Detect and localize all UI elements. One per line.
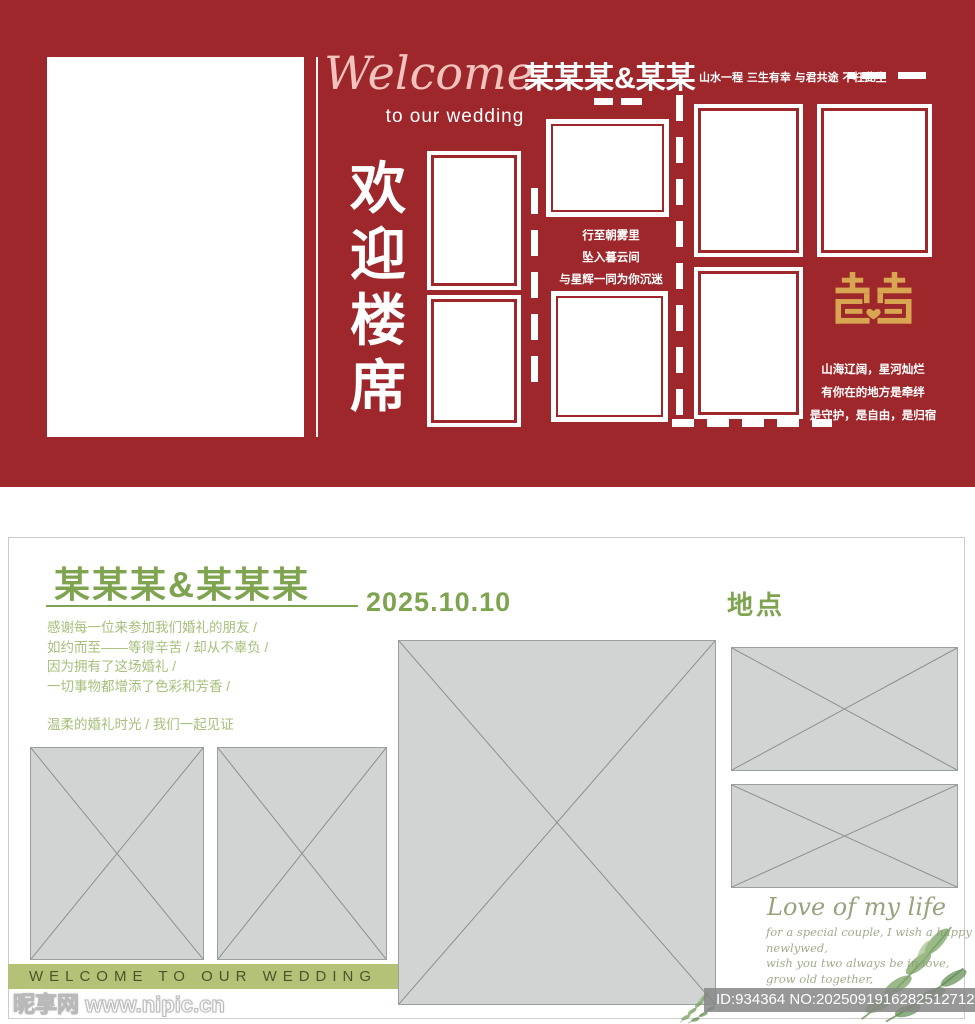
welcome-subtitle: to our wedding (365, 106, 545, 128)
welcome-script-title: Welcome (322, 46, 536, 100)
paragraph-line: 因为拥有了这场婚礼 / (47, 657, 268, 677)
location-label: 地点 (727, 585, 785, 622)
vertical-divider-line (316, 57, 318, 437)
photo-frame (694, 267, 803, 419)
blessing-block: 山海辽阔，星河灿烂 有你在的地方是牵绊 是守护，是自由，是归宿 (790, 358, 956, 427)
photo-placeholder (731, 647, 958, 771)
welcome-banner-text: WELCOME TO OUR WEDDING (8, 964, 398, 989)
photo-placeholder (731, 784, 958, 888)
site-watermark: 昵享网 www.nipic.cn (13, 987, 225, 1019)
paragraph-line: 一切事物都增添了色彩和芳香 / (47, 677, 268, 697)
vertical-title-char: 席 (347, 354, 409, 420)
deco-dash (898, 72, 926, 79)
photo-placeholder (30, 747, 204, 960)
blessing-line: 有你在的地方是牵绊 (790, 381, 956, 404)
motto-text: 山水一程 三生有幸 与君共途 不枉此生 (699, 69, 887, 85)
vertical-welcome-title: 欢 迎 楼 席 (347, 156, 409, 420)
blessing-line: 山海辽阔，星河灿烂 (790, 358, 956, 381)
deco-square (848, 72, 855, 79)
photo-frame (546, 119, 669, 217)
vertical-title-char: 楼 (347, 288, 409, 354)
photo-placeholder (217, 747, 387, 960)
stock-id-bar: ID:934364 NO:20250919162825127125 (704, 988, 975, 1012)
main-photo-placeholder (47, 57, 304, 437)
poem-line: 行至朝雾里 (530, 224, 692, 246)
wedding-date: 2025.10.10 (366, 587, 511, 618)
title-underline (46, 605, 358, 607)
paragraph-line: 感谢每一位来参加我们婚礼的朋友 / (47, 618, 268, 638)
wedding-poster-page: Welcome to our wedding 某某某&某某 山水一程 三生有幸 … (0, 0, 975, 1024)
couple-names-top: 某某某&某某 (524, 53, 696, 97)
witness-line: 温柔的婚礼时光 / 我们一起见证 (47, 713, 234, 733)
vertical-title-char: 迎 (347, 222, 409, 288)
poem-line: 坠入暮云间 (530, 246, 692, 268)
photo-frame (427, 295, 521, 427)
paragraph-line: 如约而至——等得辛苦 / 却从不辜负 / (47, 638, 268, 658)
double-happiness-icon (826, 272, 921, 354)
stock-id-text: ID:934364 NO:20250919162825127125 (704, 988, 975, 1012)
couple-names-bottom: 某某某&某某某 (54, 556, 310, 608)
deco-dash (862, 72, 886, 79)
welcome-banner: WELCOME TO OUR WEDDING (8, 964, 398, 989)
photo-placeholder (398, 640, 716, 1005)
photo-frame (817, 104, 932, 257)
poem-line: 与星辉一同为你沉迷 (530, 268, 692, 290)
poem-block: 行至朝雾里 坠入暮云间 与星辉一同为你沉迷 (530, 224, 692, 290)
photo-frame (427, 151, 521, 290)
thanks-paragraph: 感谢每一位来参加我们婚礼的朋友 / 如约而至——等得辛苦 / 却从不辜负 / 因… (47, 618, 268, 696)
red-welcome-panel: Welcome to our wedding 某某某&某某 山水一程 三生有幸 … (0, 0, 975, 487)
photo-frame (551, 291, 668, 422)
vertical-title-char: 欢 (347, 156, 409, 222)
deco-dash (621, 98, 642, 105)
deco-dash (594, 98, 613, 105)
blessing-line: 是守护，是自由，是归宿 (790, 404, 956, 427)
photo-frame (694, 104, 803, 257)
